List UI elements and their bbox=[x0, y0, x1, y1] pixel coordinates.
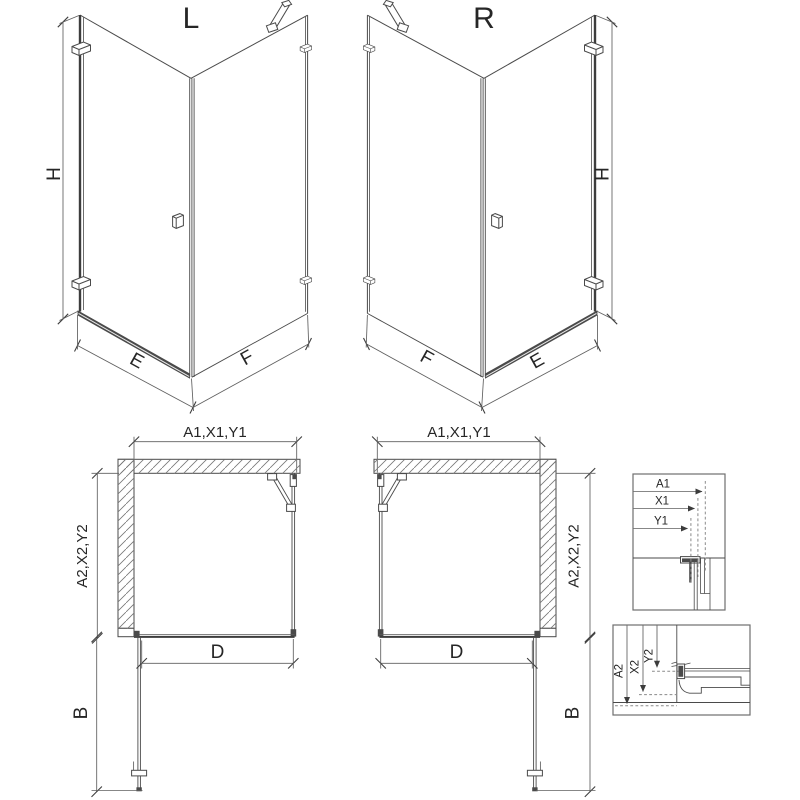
wall-top-hatch-right bbox=[374, 459, 556, 473]
opening-dim-label-right: D bbox=[450, 642, 464, 663]
height-label-right: H bbox=[593, 167, 614, 181]
detail-x2-label: X2 bbox=[630, 660, 642, 674]
wall-side-hatch-right bbox=[540, 459, 556, 628]
door-swing-label-left: B bbox=[71, 707, 92, 720]
door-swing-label-right: B bbox=[563, 707, 584, 720]
perspective-left-view: L H E F bbox=[44, 0, 312, 413]
side-dim-label-left: A2,X2,Y2 bbox=[74, 524, 91, 587]
variant-title-right: R bbox=[473, 2, 495, 35]
diagram-canvas: L H E F R H F E A1,X1,Y1 A2,X2,Y2 D B bbox=[0, 0, 800, 800]
wall-top-hatch bbox=[118, 459, 300, 473]
detail-y1-label: Y1 bbox=[654, 516, 668, 528]
front-width-label-right: E bbox=[527, 349, 548, 374]
detail-floor-profile-box: A2 X2 Y2 bbox=[613, 625, 750, 715]
detail-a1-label: A1 bbox=[656, 479, 670, 491]
plan-left-view: A1,X1,Y1 A2,X2,Y2 D B bbox=[71, 424, 302, 797]
side-dim-label-right: A2,X2,Y2 bbox=[566, 524, 583, 587]
door-bottom-section bbox=[672, 662, 751, 679]
perspective-right-view: R H F E bbox=[363, 0, 617, 413]
top-dim-label-right: A1,X1,Y1 bbox=[427, 424, 490, 441]
side-width-label-right: F bbox=[416, 346, 436, 370]
shower-enclosure-technical-diagram: L H E F R H F E A1,X1,Y1 A2,X2,Y2 D B bbox=[0, 0, 800, 800]
plan-right-view: A1,X1,Y1 A2,X2,Y2 D B bbox=[372, 424, 595, 797]
top-dim-label-left: A1,X1,Y1 bbox=[183, 424, 246, 441]
side-width-label-left: F bbox=[237, 346, 257, 370]
shower-tray-section bbox=[679, 677, 750, 693]
detail-x1-label: X1 bbox=[655, 496, 669, 508]
detail-wall-profile-box: A1 X1 Y1 bbox=[633, 474, 725, 610]
height-label-left: H bbox=[44, 167, 65, 181]
wall-side-hatch bbox=[118, 459, 134, 628]
opening-dim-label-left: D bbox=[211, 642, 225, 663]
side-dimension-left bbox=[92, 468, 120, 643]
variant-title-left: L bbox=[183, 2, 200, 35]
front-width-label-left: E bbox=[126, 349, 147, 374]
detail-y2-label: Y2 bbox=[644, 649, 656, 663]
detail-a2-label: A2 bbox=[614, 664, 626, 678]
